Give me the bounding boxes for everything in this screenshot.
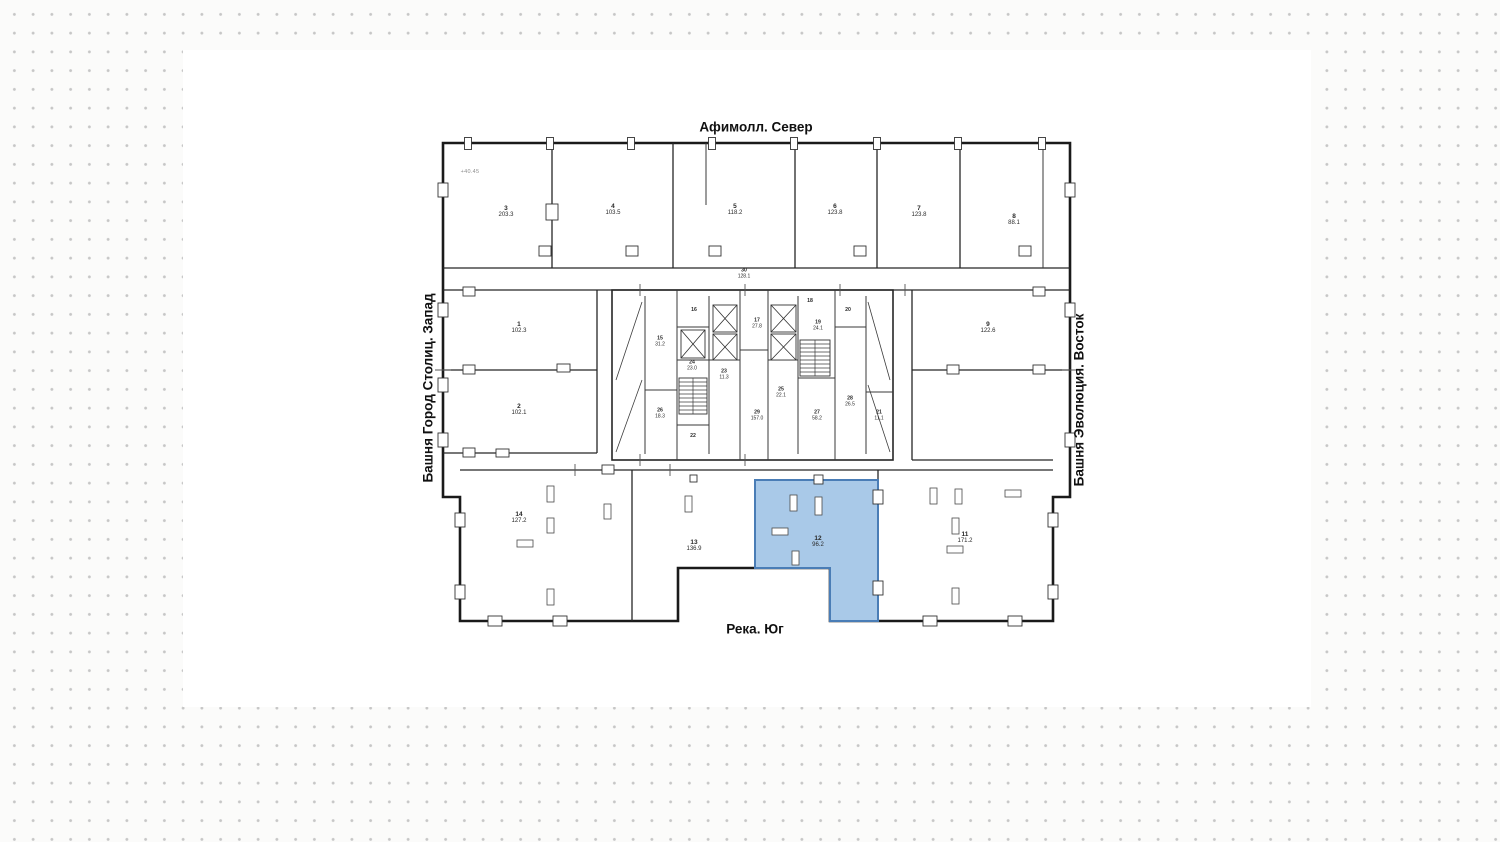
page-background: { "orientation": { "north": "Афимолл. Се… [0,0,1500,842]
staircase-right-icon [800,340,830,376]
staircase-left-icon [679,378,707,414]
floor-plan-svg [0,0,1500,842]
